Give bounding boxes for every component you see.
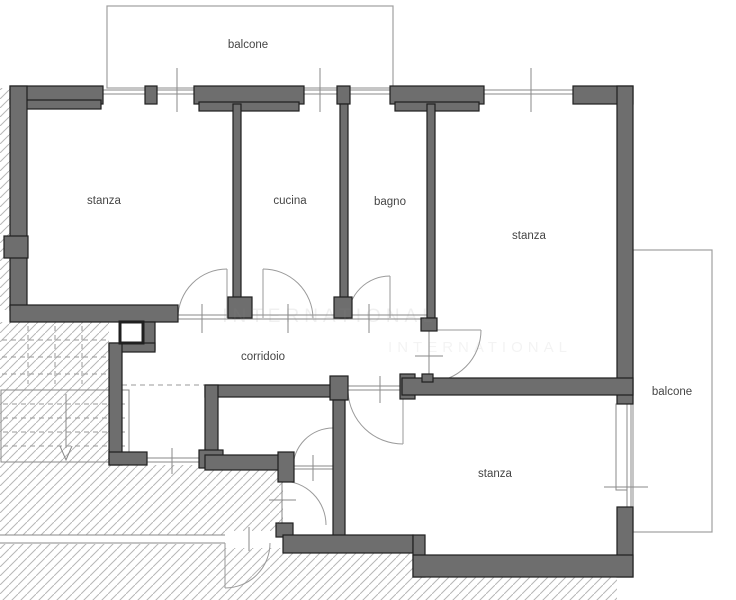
svg-text:INTERNATIONAL: INTERNATIONAL [222, 306, 438, 327]
svg-text:INTERNATIONAL: INTERNATIONAL [388, 339, 572, 356]
balcony-door-leaf [616, 404, 627, 490]
watermark: INTERNATIONAL INTERNATIONAL [222, 306, 572, 356]
label-bathroom: bagno [374, 196, 406, 208]
floor-plan-canvas: INTERNATIONAL INTERNATIONAL balcone stan… [0, 0, 736, 600]
label-corridor: corridoio [241, 351, 285, 363]
label-room-bottom: stanza [478, 468, 512, 480]
label-kitchen: cucina [273, 195, 307, 207]
shaft-box [120, 322, 143, 343]
door-arc-entrance [282, 481, 326, 525]
label-balcony-top: balcone [228, 39, 268, 51]
floor-plan-page: INTERNATIONAL INTERNATIONAL balcone stan… [0, 0, 736, 600]
door-arc-room-bottom [348, 392, 403, 444]
room-labels: balcone stanza cucina bagno stanza corri… [87, 39, 692, 480]
label-room-top-left: stanza [87, 195, 121, 207]
label-balcony-right: balcone [652, 386, 692, 398]
label-room-top-right: stanza [512, 230, 546, 242]
